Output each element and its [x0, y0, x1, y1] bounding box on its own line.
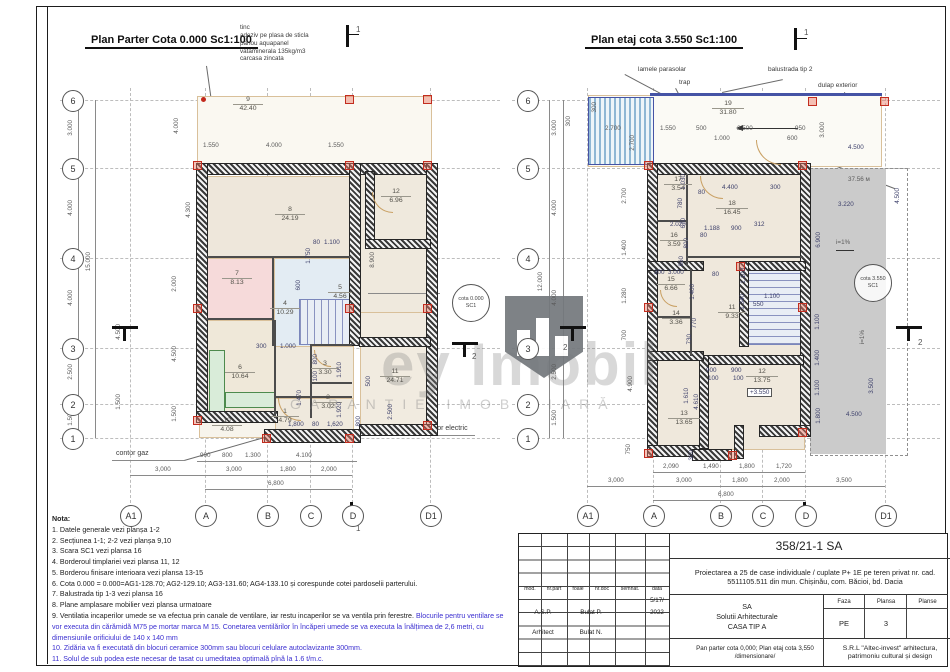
callout-line: tinc: [240, 24, 309, 32]
room-area: 13.65: [675, 419, 692, 426]
dim: 100: [313, 371, 319, 382]
stamp-role: Arhitect: [519, 626, 567, 639]
stamp-name: Bulat N.: [567, 626, 615, 639]
section-marker-1-bar: [794, 28, 797, 50]
grid-bubble-col-C: C: [300, 505, 322, 527]
note-item: 9. Ventilatia incaperilor umede se va ef…: [52, 611, 514, 643]
dim: 800: [684, 238, 690, 249]
dim: 3.500: [869, 378, 875, 394]
dim: 80: [700, 233, 707, 239]
dim-line: [653, 472, 805, 473]
leader-line: [112, 460, 184, 461]
kitchen-counter: [209, 350, 225, 418]
object-line: SA: [742, 602, 752, 612]
grid-bubble-col-B: B: [257, 505, 279, 527]
grid-bubble-label: D1: [880, 511, 892, 521]
dim: 2,000: [321, 467, 337, 473]
dim: 730: [687, 334, 693, 345]
dim: 300: [654, 270, 665, 276]
room-number: 14: [662, 310, 690, 319]
column-marker: [798, 303, 807, 312]
column-marker: [345, 304, 354, 313]
dim: 1,800: [280, 467, 296, 473]
dim: 4.500: [848, 145, 864, 151]
dim-line: [205, 489, 352, 490]
dim: 300: [592, 102, 598, 113]
dim: 4.900: [628, 376, 634, 392]
dim: 1.500: [116, 394, 122, 410]
dim: 1.100: [815, 314, 821, 330]
room-area: 24.71: [386, 377, 403, 384]
column-marker: [193, 304, 202, 313]
section-marker-2-stem: [571, 329, 574, 341]
room-number: 10: [212, 417, 242, 426]
stamp-header-nrpart: nr.part: [541, 582, 567, 595]
dim: 1.610: [684, 388, 690, 404]
dim-line: [130, 475, 352, 476]
dim: 4.500: [846, 412, 862, 418]
room-number: 12: [746, 368, 778, 377]
grid-bubble-label: D: [350, 511, 357, 521]
stamp-header-foaie: foaie: [567, 582, 589, 595]
dim: 1.000: [714, 136, 730, 142]
note-item: 6. Cota 0.000 = 0.000=AG1-128.70; AG2-12…: [52, 579, 514, 590]
dim: 600: [787, 136, 798, 142]
grid-bubble-row-6: 6: [62, 90, 84, 112]
dim: 1.500: [172, 406, 178, 422]
dim: 6.900: [816, 232, 822, 248]
dim: 2.000: [172, 276, 178, 292]
dim: 1.800: [816, 408, 822, 424]
grid-bubble-label: 2: [525, 400, 530, 410]
room-area: 10.29: [276, 309, 293, 316]
room-area: 4.56: [333, 293, 346, 300]
dim: 100: [733, 376, 744, 382]
grid-bubble-label: 1: [70, 434, 75, 444]
dim: 780: [678, 198, 684, 209]
facade-material-callout: tinc adeziv pe plasa de sticla panou aqu…: [240, 24, 309, 63]
grid-bubble-col-A: A: [643, 505, 665, 527]
grid-bubble-col-A: A: [195, 505, 217, 527]
grid-line-A1: [130, 88, 131, 508]
grid-bubble-label: C: [308, 511, 315, 521]
dim: 3.000: [68, 120, 74, 136]
faza-value: PE: [824, 608, 864, 638]
room-area: 13.75: [753, 377, 770, 384]
trap-label: trap: [679, 79, 690, 87]
project-code: 358/21-1 SA: [669, 534, 948, 558]
room-label-5: 54.56: [328, 284, 352, 301]
room-area: 4.08: [220, 426, 233, 433]
room-area: 3.02: [321, 403, 334, 410]
room-area: 31.80: [719, 109, 736, 116]
room-label-10: 104.08: [212, 417, 242, 434]
dim: 3.000: [820, 122, 826, 138]
wall: [700, 356, 803, 364]
dim: 4.000: [552, 290, 558, 306]
column-marker: [193, 416, 202, 425]
grid-bubble-row-3: 3: [62, 338, 84, 360]
column-marker: [345, 434, 354, 443]
partition: [688, 256, 803, 258]
room-number: 5: [328, 284, 352, 293]
dim: 3.000: [668, 270, 684, 276]
dim: 80: [312, 422, 319, 428]
plansa-value: 3: [864, 608, 907, 638]
section-marker-1-bar: [346, 25, 349, 47]
stamp-role: A.S.P.: [519, 606, 567, 619]
cota-value: cota 3.550: [860, 276, 885, 283]
note-item: 5. Borderou finisare interioara vezi pla…: [52, 568, 514, 579]
section-marker-2-label: 2: [563, 343, 567, 352]
dim: 2.500: [68, 364, 74, 380]
project-title: Proiectarea a 25 de case individuale / c…: [669, 558, 950, 595]
room-label-18: 1816.45: [716, 200, 748, 217]
dim: 3,500: [836, 478, 852, 484]
dim: 1.300: [245, 453, 261, 459]
plan-parter-title: Plan Parter Cota 0.000 Sc1:100: [85, 34, 258, 49]
wall: [197, 164, 437, 174]
dim-line: [653, 500, 805, 501]
grid-bubble-label: 6: [70, 96, 75, 106]
dim: 900: [731, 368, 742, 374]
dim: 100: [708, 376, 719, 382]
planse-value: [906, 608, 948, 638]
dim: 2.700: [622, 188, 628, 204]
grid-bubble-row-1: 1: [517, 428, 539, 450]
room-number: 15: [657, 276, 685, 285]
dim: 1.470: [297, 390, 303, 406]
dim: 1,800: [288, 422, 304, 428]
grid-bubble-col-D1: D1: [420, 505, 442, 527]
column-marker: [423, 304, 432, 313]
room-number: 1: [271, 408, 299, 417]
room-number: 6: [225, 364, 255, 373]
room-number: 11: [380, 368, 410, 377]
room-area: 42.40: [239, 105, 256, 112]
object-line: Solutii Arhitecturale: [716, 612, 778, 622]
dim: 1,620: [327, 422, 343, 428]
stamp-header-semnat: semnat.: [615, 582, 645, 595]
dim: 8.900: [370, 252, 376, 268]
company-name: S.R.L "Altec-invest" arhitectura, patrim…: [823, 638, 950, 667]
callout-line: panou aquapanel: [240, 40, 309, 48]
cota-3550-marker: cota 3.550SC1: [854, 264, 892, 302]
dim: 4.500: [895, 188, 901, 204]
dim: 3,000: [676, 478, 692, 484]
grid-bubble-label: 5: [525, 164, 530, 174]
wall: [693, 450, 731, 460]
column-marker: [798, 428, 807, 437]
room-number: 12: [381, 188, 411, 197]
dim: 500: [366, 376, 372, 387]
dim: 80: [712, 272, 719, 278]
binding-margin-line: [47, 6, 48, 664]
room-area: 16.45: [723, 209, 740, 216]
grid-bubble-label: A: [651, 511, 657, 521]
room-label-14: 143.36: [662, 310, 690, 327]
room-area: 8.13: [230, 279, 243, 286]
grid-bubble-col-C: C: [752, 505, 774, 527]
stamp-name: Bulat P.: [567, 606, 615, 619]
grid-bubble-row-3: 3: [517, 338, 539, 360]
dim: 4.500: [172, 346, 178, 362]
room-label-12: 126.96: [381, 188, 411, 205]
partition: [207, 318, 274, 320]
dim: 1.920: [337, 402, 343, 418]
note-item: 11. Solul de sub podea este necesar de t…: [52, 654, 514, 665]
dim: 600: [296, 280, 302, 291]
grid-bubble-row-5: 5: [517, 158, 539, 180]
room-label-11: 1124.71: [380, 368, 410, 385]
note-item: 8. Plane amplasare mobilier vezi plansa …: [52, 600, 514, 611]
grid-bubble-row-1: 1: [62, 428, 84, 450]
grid-bubble-col-B: B: [710, 505, 732, 527]
grid-bubble-row-5: 5: [62, 158, 84, 180]
dim: 1.100: [764, 294, 780, 300]
grid-bubble-label: B: [265, 511, 271, 521]
dim: 1.500: [552, 410, 558, 426]
dim: 1,490: [703, 464, 719, 470]
leader-line: [400, 435, 475, 436]
grid-bubble-label: 1: [525, 434, 530, 444]
notes-block: Nota: 1. Datele generale vezi planșa 1-2…: [52, 514, 514, 665]
note-item: 2. Secțiunea 1-1; 2-2 vezi planșa 9,10: [52, 536, 514, 547]
room-label-13: 1313.65: [668, 410, 700, 427]
callout-line: carcasa zincata: [240, 55, 309, 63]
dim: 800: [222, 453, 233, 459]
column-marker: [193, 161, 202, 170]
stamp-header-mod: mod.: [519, 582, 541, 595]
wall: [366, 240, 430, 248]
column-marker: [644, 449, 653, 458]
room-number: 18: [716, 200, 748, 209]
dim: 4.000: [552, 200, 558, 216]
sheet-description: Pan parter cota 0,000; Plan etaj cota 3,…: [669, 638, 840, 667]
dim: 950: [795, 126, 806, 132]
dim: 860: [679, 256, 685, 267]
level-tag: +3.550: [747, 388, 772, 397]
grid-bubble-row-4: 4: [517, 248, 539, 270]
dim: 800: [356, 416, 362, 427]
grid-bubble-label: 3: [525, 344, 530, 354]
dim: 1.550: [328, 143, 344, 149]
grid-bubble-row-6: 6: [517, 90, 539, 112]
dim-total: 12.000: [538, 272, 544, 291]
wall: [350, 164, 360, 345]
dim: 4.000: [68, 290, 74, 306]
object-title: SA Solutii Arhitecturale CASA TIP A: [669, 594, 824, 639]
balustrade-tip2-rail: [650, 93, 882, 96]
cota-scale: SC1: [466, 303, 477, 310]
kitchen-cabinets: [225, 392, 275, 408]
dim: 1.750: [306, 248, 312, 264]
room-number: 7: [222, 270, 252, 279]
dim: 1.030: [681, 174, 687, 190]
dim: 1.400: [815, 350, 821, 366]
room-label-15: 156.66: [657, 276, 685, 293]
grid-bubble-label: 4: [70, 254, 75, 264]
room-area: 24.19: [281, 215, 298, 222]
grid-bubble-label: D: [803, 511, 810, 521]
dim: 2.700: [605, 126, 621, 132]
dim: 2.020: [670, 222, 686, 228]
dim: 2,000: [774, 478, 790, 484]
dim: 1.550: [203, 143, 219, 149]
section-marker-2-label: 2: [472, 352, 476, 361]
dim: 4.000: [68, 200, 74, 216]
dim: 3.000: [552, 120, 558, 136]
object-line: CASA TIP A: [728, 622, 767, 632]
column-marker: [808, 97, 817, 106]
room-area: 9.33: [725, 313, 738, 320]
column-marker: [423, 421, 432, 430]
grid-bubble-label: 2: [70, 400, 75, 410]
room-label-17: 173.54: [664, 176, 692, 193]
column-marker: [798, 161, 807, 170]
column-marker: [423, 95, 432, 104]
dim: 4.610: [694, 394, 700, 410]
grid-bubble-label: A1: [125, 511, 136, 521]
note-item-part: 9. Ventilatia incaperilor umede se va ef…: [52, 612, 414, 620]
room-area: 3.30: [318, 369, 331, 376]
room-area: 3.59: [667, 241, 680, 248]
grid-bubble-col-A1: A1: [120, 505, 142, 527]
dim: 4.300: [186, 202, 192, 218]
section-marker-2-stem: [907, 329, 910, 341]
dim: 4.000: [174, 118, 180, 134]
room-area: 10.64: [231, 373, 248, 380]
dim: 1.910: [337, 362, 343, 378]
dim-line: [587, 486, 885, 487]
column-marker: [262, 434, 271, 443]
wall: [801, 164, 810, 436]
dim: 900: [731, 226, 742, 232]
grid-bubble-label: 6: [525, 96, 530, 106]
dim-line: [78, 100, 79, 438]
column-marker: [345, 161, 354, 170]
dim: 4.100: [296, 453, 312, 459]
stamp-date: 2022: [645, 606, 669, 619]
grid-bubble-label: 4: [525, 254, 530, 264]
dim: 3,000: [608, 478, 624, 484]
note-item: 4. Borderoul timplariei vezi plansa 11, …: [52, 557, 514, 568]
stamp-header-nrdoc: nr.doc: [589, 582, 615, 595]
dim: 1.100: [815, 380, 821, 396]
cota-value: cota 0.000: [458, 296, 483, 303]
dim: 1,800: [739, 464, 755, 470]
callout-target-dot: [201, 97, 206, 102]
column-marker: [728, 451, 737, 460]
note-item: 10. Zidăria va fi executată din blocuri …: [52, 643, 514, 654]
callout-line: vataminerala 135kg/m3: [240, 48, 309, 56]
partition: [207, 256, 352, 258]
planse-header: Planse: [906, 595, 948, 609]
dim: 800: [313, 354, 319, 365]
dim: 750: [626, 444, 632, 455]
column-marker: [880, 97, 889, 106]
grid-bubble-col-A1: A1: [577, 505, 599, 527]
grid-bubble-label: B: [718, 511, 724, 521]
dim-total: 6,800: [718, 492, 734, 498]
section-marker-2-stem: [463, 345, 466, 357]
drawing-sheet: ey Imobil GARANȚIE IMOBILIARĂ Plan Parte…: [0, 0, 950, 672]
dim: 4.400: [722, 185, 738, 191]
dim: 1.400: [622, 240, 628, 256]
grid-bubble-label: 3: [70, 344, 75, 354]
dim: 1.100: [324, 240, 340, 246]
grid-bubble-label: A1: [582, 511, 593, 521]
dim: 2.500: [388, 404, 394, 420]
dim-total: 15.000: [86, 252, 92, 271]
plan-etaj-title: Plan etaj cota 3.550 Sc1:100: [585, 34, 743, 49]
dim: 1,800: [732, 478, 748, 484]
room-area: 3.36: [669, 319, 682, 326]
dim-total: 6,800: [268, 481, 284, 487]
balustrada-tip2-label: balustrada tip 2: [768, 66, 812, 74]
dim: 80: [313, 240, 320, 246]
dim: 300: [770, 185, 781, 191]
grid-bubble-row-2: 2: [62, 394, 84, 416]
room-label-19: 1931.80: [712, 100, 744, 117]
wall: [197, 164, 207, 422]
dim: 2.500: [552, 364, 558, 380]
dulap-exterior-label: dulap exterior: [818, 82, 857, 90]
wall: [648, 164, 810, 174]
grid-bubble-label: D1: [425, 511, 437, 521]
dim: 300: [566, 116, 572, 127]
room-7-fill: [207, 258, 274, 320]
dim: 1.550: [660, 126, 676, 132]
plansa-header: Plansa: [864, 595, 907, 609]
room-label-8: 824.19: [275, 206, 305, 223]
section-marker-1-label: 1: [356, 25, 360, 34]
room-number: 13: [668, 410, 700, 419]
dim: 3.220: [838, 202, 854, 208]
wall: [366, 172, 374, 244]
dim: 1.100: [741, 268, 747, 284]
grid-bubble-col-D1: D1: [875, 505, 897, 527]
dim: 770: [692, 318, 698, 329]
dim: 300: [256, 344, 267, 350]
room-number: 4: [270, 300, 300, 309]
slope-arrow: [836, 250, 854, 251]
title-block: mod. nr.part foaie nr.doc semnat. data 5…: [518, 533, 948, 667]
dim: 1.280: [622, 288, 628, 304]
section-marker-2-stem: [123, 329, 126, 341]
slope-label: i=1%: [836, 240, 850, 246]
dim: 3,000: [155, 467, 171, 473]
dim: 1.400: [690, 284, 696, 300]
dim: 4.000: [266, 143, 282, 149]
room-label-12: 1213.75: [746, 368, 778, 385]
room-number: 8: [275, 206, 305, 215]
room-area: 6.66: [664, 285, 677, 292]
room-number: 17: [664, 176, 692, 185]
grid-bubble-col-D: D: [342, 505, 364, 527]
note-item: 3. Scara SC1 vezi plansa 16: [52, 546, 514, 557]
cota-scale: SC1: [868, 283, 879, 290]
room-label-4: 410.29: [270, 300, 300, 317]
dim: 1,720: [776, 464, 792, 470]
section-marker-1-tick: [797, 38, 807, 39]
note-item: 7. Balustrada tip 1-3 vezi plansa 16: [52, 589, 514, 600]
faza-header: Faza: [824, 595, 864, 609]
grid-bubble-col-D: D: [795, 505, 817, 527]
dim: 550: [753, 302, 764, 308]
dim-line: [95, 100, 96, 438]
contor-gaz-label: contor gaz: [116, 450, 149, 459]
